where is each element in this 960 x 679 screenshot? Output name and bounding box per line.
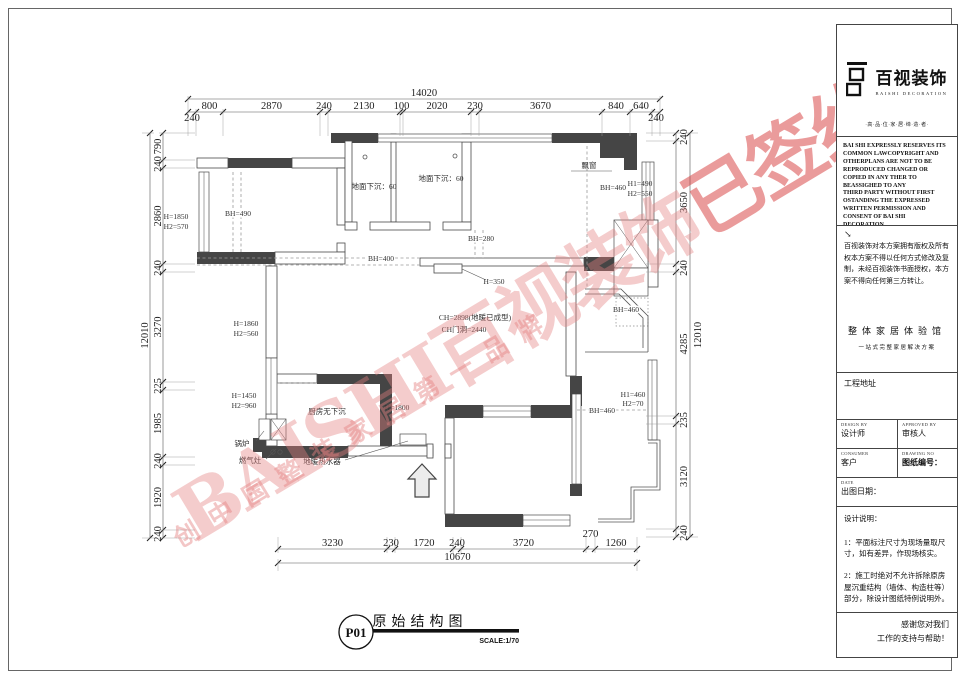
dimension-value: 1985 <box>153 413 164 434</box>
dimension-value: 240 <box>679 129 690 145</box>
drawing-sheet: P01 原始结构图 SCALE:1/70 1402024080028702402… <box>0 0 960 679</box>
drain-symbol <box>363 155 367 159</box>
plan-label: H=1850 <box>164 212 189 221</box>
titleblock-field: DESIGN BY设计师 <box>837 420 897 449</box>
drawing-number: P01 <box>346 625 367 640</box>
plan-label: 地面下沉：60 <box>419 173 464 183</box>
plan-label: CH门洞=2440 <box>442 325 487 334</box>
plan-label: 锅炉 <box>235 438 250 448</box>
dimension-value: 12010 <box>140 322 151 348</box>
plan-label: 厨房无下沉 <box>308 406 346 416</box>
slogan-sub: 一站式完整家居解决方案 <box>837 343 957 351</box>
floor-plan-canvas: P01 原始结构图 SCALE:1/70 1402024080028702402… <box>0 0 960 679</box>
dimension-value: 230 <box>383 538 399 549</box>
titleblock-field: APPROVED BY审核人 <box>897 420 957 449</box>
dimension-value: 10670 <box>444 552 470 563</box>
titleblock-field: DATE出图日期： <box>837 478 957 507</box>
copyright-english: BAI SHI EXPRESSLY RESERVES ITS COMMON LA… <box>837 136 957 225</box>
dimension-value: 2020 <box>427 101 448 112</box>
field-label-cn: 审核人 <box>902 428 953 439</box>
design-notes-title: 设计说明： <box>844 513 950 525</box>
field-label-cn: 客户 <box>841 457 893 468</box>
dimension-value: 235 <box>679 412 690 428</box>
drawing-scale: SCALE:1/70 <box>479 638 519 645</box>
dimension-value: 270 <box>583 529 599 540</box>
dimension-value: 1920 <box>153 487 164 508</box>
dimension-value: 225 <box>153 378 164 394</box>
plan-label: BH=280 <box>468 234 494 243</box>
dimension-value: 230 <box>467 101 483 112</box>
dimension-value: 12010 <box>693 322 704 348</box>
field-label-en: DESIGN BY <box>841 422 893 427</box>
drain-symbol <box>453 154 457 158</box>
plan-label: H2=960 <box>232 401 257 410</box>
dimension-value: 14020 <box>411 88 437 99</box>
plan-label: 地暖热水器 <box>303 456 341 466</box>
plan-label: BH=490 <box>225 209 251 218</box>
window-br-bottom <box>523 515 570 526</box>
dimension-value: 790 <box>153 139 164 155</box>
field-label-en: APPROVED BY <box>902 422 953 427</box>
dimension-value: 3650 <box>679 192 690 213</box>
brand-tagline: ·高·品·位·家·居·缔·造·者· <box>837 121 957 136</box>
plan-label: H=1800 <box>385 403 410 412</box>
window-bedroom-left <box>199 172 209 252</box>
field-label-en: CONSUMER <box>841 451 893 456</box>
brand-name: 百视装饰 <box>875 64 947 89</box>
brand-header: 百视装饰 BAISHI DECORATION <box>837 25 957 121</box>
plan-label: BH=460 <box>613 305 639 314</box>
drawing-title: P01 原始结构图 SCALE:1/70 <box>339 614 519 649</box>
window-br-right <box>572 394 581 484</box>
window-kitchen-left <box>266 358 277 414</box>
dimension-value: 840 <box>608 101 624 112</box>
drawing-name: 原始结构图 <box>373 614 468 630</box>
plan-label: 地面下沉：60 <box>352 181 397 191</box>
titleblock-field: DRAWING NO图纸编号： <box>897 449 957 478</box>
dimension-value: 2860 <box>153 206 164 227</box>
plan-label: BH=400 <box>368 254 394 263</box>
plan-label: H2=70 <box>623 399 644 408</box>
field-label-en: DATE <box>841 480 953 485</box>
design-notes: 设计说明： 1：平面标注尺寸为现场量取尺寸，如有差异，作现场核实。2：施工时绝对… <box>837 507 957 612</box>
bay-window-middle-right <box>585 289 648 352</box>
copyright-chinese: 百视装饰对本方案拥有版权及所有权本方案不得以任何方式修改及复制，未经百视装饰书面… <box>844 241 950 287</box>
dimension-value: 640 <box>633 101 649 112</box>
plan-label: CH=2898(地暖已成型) <box>439 312 512 322</box>
slogan-main: 整体家居体验馆 <box>837 324 957 337</box>
dimension-value: 240 <box>679 260 690 276</box>
plan-label: H=1860 <box>234 319 259 328</box>
dimension-value: 3720 <box>513 538 534 549</box>
dimension-value: 3270 <box>153 317 164 338</box>
arrow-icon: ↘ <box>844 228 950 241</box>
dimension-value: 240 <box>153 526 164 542</box>
title-block: 百视装饰 BAISHI DECORATION ·高·品·位·家·居·缔·造·者·… <box>836 24 958 658</box>
plan-label: H2=570 <box>164 222 189 231</box>
entry-arrow-icon <box>408 464 436 497</box>
design-note: 1：平面标注尺寸为现场量取尺寸，如有差异，作现场核实。 <box>844 537 950 560</box>
field-label-cn: 图纸编号： <box>902 457 953 468</box>
slogan-block: 整体家居体验馆 一站式完整家居解决方案 <box>837 314 957 372</box>
dimension-value: 800 <box>202 101 218 112</box>
plan-label: BH=460 <box>589 406 615 415</box>
titleblock-field: CONSUMER客户 <box>837 449 897 478</box>
dimension-value: 240 <box>153 156 164 172</box>
dimension-value: 3230 <box>322 538 343 549</box>
window-right-lower <box>648 360 657 440</box>
dimension-value: 100 <box>394 101 410 112</box>
beams <box>197 146 648 410</box>
title-block-grid: DESIGN BY设计师APPROVED BY审核人CONSUMER客户DRAW… <box>837 419 957 507</box>
dimension-value: 240 <box>316 101 332 112</box>
dimension-value: 2130 <box>354 101 375 112</box>
water-heater <box>400 434 426 445</box>
dimension-value: 240 <box>449 538 465 549</box>
design-note: 2：施工时绝对不允许拆除原房屋沉重结构（墙体、构造柱等）部分，除设计图纸特例说明… <box>844 570 950 605</box>
dimension-value: 240 <box>184 113 200 124</box>
baishi-logo-icon <box>846 62 870 98</box>
window-top-band <box>378 134 552 142</box>
plan-label: H2=560 <box>234 329 259 338</box>
plan-label: 飘窗 <box>582 160 597 170</box>
boiler <box>259 419 270 440</box>
field-label-cn: 出图日期： <box>841 486 953 497</box>
copyright-chinese-block: ↘ 百视装饰对本方案拥有版权及所有权本方案不得以任何方式修改及复制，未经百视装饰… <box>837 225 957 314</box>
dimension-value: 240 <box>153 260 164 276</box>
plan-label: H1=490 <box>628 179 653 188</box>
dimension-value: 240 <box>648 113 664 124</box>
dimension-value: 1720 <box>414 538 435 549</box>
plan-label: H2=550 <box>628 189 653 198</box>
field-label-cn: 设计师 <box>841 428 893 439</box>
window-br-top <box>483 406 531 417</box>
plan-label: 燃气灶 <box>239 455 262 465</box>
brand-name-en: BAISHI DECORATION <box>875 91 947 96</box>
project-address-label: 工程地址 <box>837 372 957 419</box>
kitchen-flue <box>271 419 286 440</box>
plan-label: BH=460 <box>600 183 626 192</box>
dimension-value: 3120 <box>679 466 690 487</box>
dimension-value: 2870 <box>261 101 282 112</box>
thanks-note: 感谢您对我们 工作的支持与帮助！ <box>837 612 957 657</box>
plan-label: H=350 <box>484 277 505 286</box>
fixtures <box>259 154 660 522</box>
dimension-value: 4285 <box>679 334 690 355</box>
field-label-en: DRAWING NO <box>902 451 953 456</box>
terrace-steps <box>598 440 660 522</box>
plan-label: H1=460 <box>621 390 646 399</box>
dimension-value: 240 <box>153 453 164 469</box>
plan-label: H=1450 <box>232 391 257 400</box>
dimension-value: 1260 <box>606 538 627 549</box>
dimension-value: 3670 <box>530 101 551 112</box>
